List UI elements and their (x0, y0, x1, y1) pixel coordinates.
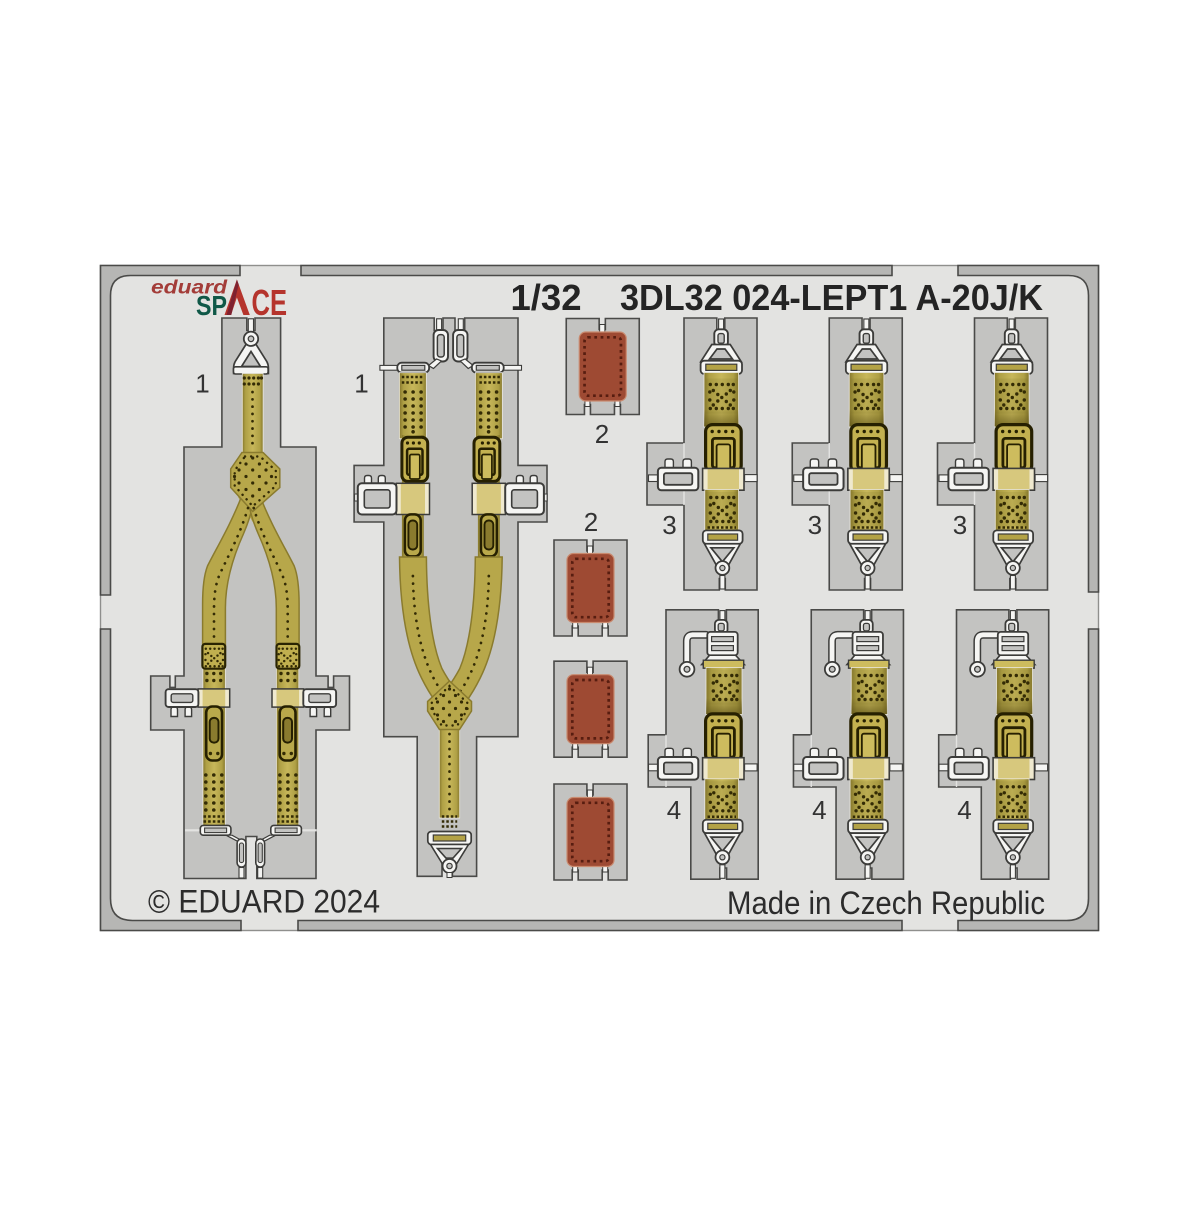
svg-text:© EDUARD 2024: © EDUARD 2024 (148, 884, 380, 920)
svg-text:4: 4 (812, 795, 826, 825)
svg-text:CE: CE (252, 282, 288, 323)
svg-text:4: 4 (957, 795, 971, 825)
svg-text:2: 2 (595, 419, 609, 449)
svg-text:Made in Czech Republic: Made in Czech Republic (727, 885, 1045, 921)
svg-text:3DL32 024-LEPT1 A-20J/K: 3DL32 024-LEPT1 A-20J/K (620, 277, 1044, 318)
svg-text:SP: SP (196, 290, 227, 321)
svg-text:2: 2 (584, 507, 598, 537)
svg-text:1: 1 (354, 369, 368, 399)
svg-text:3: 3 (953, 510, 967, 540)
svg-text:1/32: 1/32 (510, 277, 581, 318)
svg-text:3: 3 (808, 510, 822, 540)
svg-text:3: 3 (662, 510, 676, 540)
svg-text:1: 1 (195, 369, 209, 399)
svg-text:4: 4 (667, 795, 681, 825)
